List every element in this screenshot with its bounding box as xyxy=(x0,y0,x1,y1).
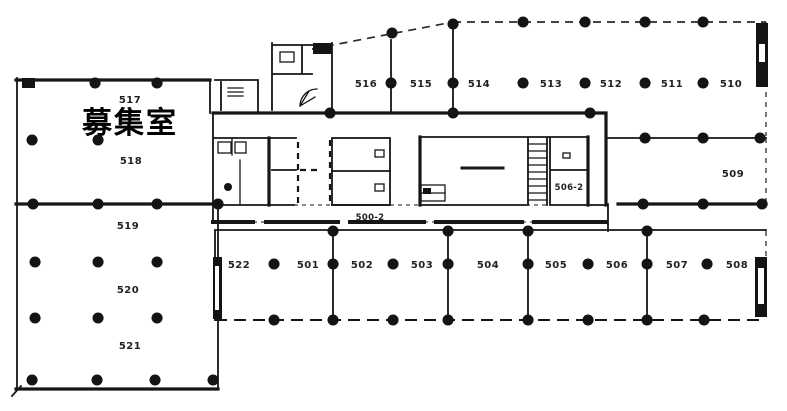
structural-columns xyxy=(32,22,762,380)
floor-plan-page: 517 募集室 518 519 520 521 516 515 514 513 … xyxy=(0,0,787,411)
elevator-mark xyxy=(375,184,384,191)
elevator-mark xyxy=(375,150,384,157)
room-label-507: 507 xyxy=(666,260,688,271)
room-label-510: 510 xyxy=(720,79,742,90)
room-label-516: 516 xyxy=(355,79,377,90)
sink-fixture xyxy=(218,142,231,153)
room-label-505: 505 xyxy=(545,260,567,271)
floor-plan-drawing: 517 募集室 518 519 520 521 516 515 514 513 … xyxy=(0,0,787,411)
room-label-512: 512 xyxy=(600,79,622,90)
room-label-520: 520 xyxy=(117,285,139,296)
core-label-506-2: 506-2 xyxy=(555,183,584,193)
staircase xyxy=(528,144,547,200)
toilet-dot xyxy=(224,183,232,191)
room-label-514: 514 xyxy=(468,79,490,90)
duct-mark xyxy=(563,153,570,158)
room-label-511: 511 xyxy=(661,79,683,90)
room-label-513: 513 xyxy=(540,79,562,90)
room-label-502: 502 xyxy=(351,260,373,271)
room-label-515: 515 xyxy=(410,79,432,90)
top-boundary xyxy=(312,22,766,49)
room-labels: 517 募集室 518 519 520 521 516 515 514 513 … xyxy=(81,79,748,352)
room-label-504: 504 xyxy=(477,260,499,271)
window-openings xyxy=(213,23,768,319)
room-label-517: 517 xyxy=(119,95,141,106)
door-swing xyxy=(300,89,317,106)
room-label-518: 518 xyxy=(120,156,142,167)
vacancy-label: 募集室 xyxy=(81,106,178,141)
room-label-509: 509 xyxy=(722,169,744,180)
room-label-521: 521 xyxy=(119,341,141,352)
core-label-500-2: 500-2 xyxy=(356,213,385,223)
room-label-506: 506 xyxy=(606,260,628,271)
toilet-fixture xyxy=(280,52,294,62)
sink-fixture xyxy=(235,142,246,153)
room-label-522: 522 xyxy=(228,260,250,271)
room-label-503: 503 xyxy=(411,260,433,271)
room-label-501: 501 xyxy=(297,260,319,271)
room-label-508: 508 xyxy=(726,260,748,271)
room-label-519: 519 xyxy=(117,221,139,232)
